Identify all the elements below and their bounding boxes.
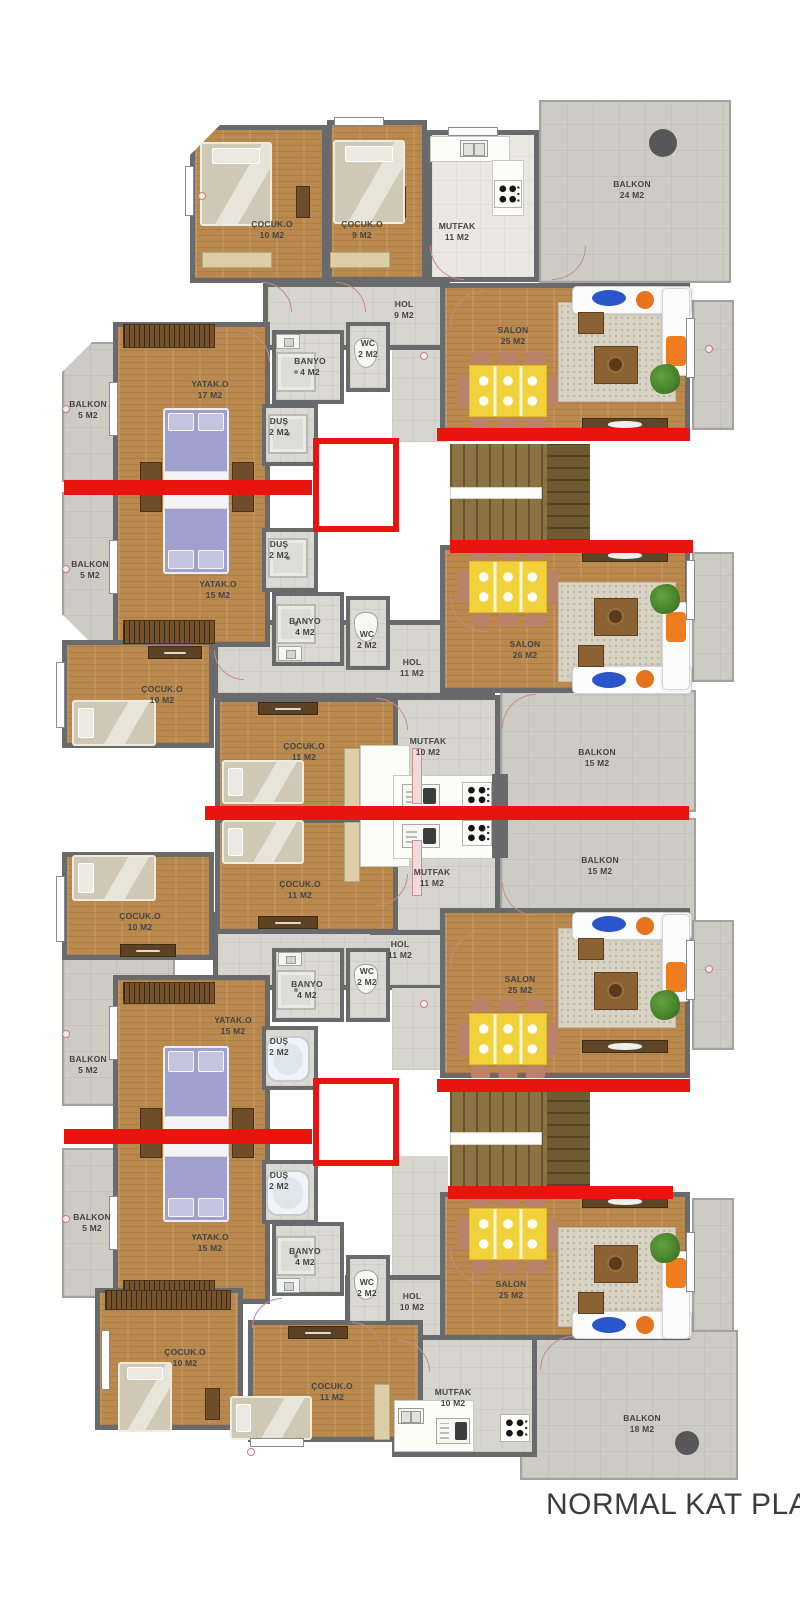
furniture-sideT	[578, 1292, 604, 1314]
furniture-washer	[276, 334, 300, 349]
red-section-bar	[448, 1186, 673, 1199]
room-area-text: 10 M2	[251, 230, 293, 241]
room-label-cocuk-ust-1: ÇOCUK.O10 M2	[251, 219, 293, 241]
room-area-text: 4 M2	[289, 627, 321, 638]
window	[686, 318, 695, 378]
room-area-text: 11 M2	[400, 668, 424, 679]
floor-plan-canvas: NORMAL KAT PLANI BALKON24 M2BALKON15 M2B…	[0, 0, 800, 1600]
dimension-mark	[420, 1000, 428, 1008]
room-label-balkon-5-a2: BALKON5 M2	[71, 559, 109, 581]
room-name-text: ÇOCUK.O	[119, 911, 161, 922]
furniture-bedD	[163, 1046, 229, 1134]
furniture-washer	[278, 646, 302, 661]
furniture-coffee	[594, 346, 638, 384]
room-label-balkon-15-ust: BALKON15 M2	[578, 747, 616, 769]
room-label-wc-b1: WC2 M2	[357, 966, 377, 988]
furniture-bench	[344, 748, 360, 808]
room-label-wc-a: WC2 M2	[358, 338, 378, 360]
room-name-text: BANYO	[289, 1246, 321, 1257]
room-label-cocuk-orta-sol-2: ÇOCUK.O10 M2	[119, 911, 161, 933]
furniture-sideT	[578, 312, 604, 334]
dimension-mark	[705, 345, 713, 353]
red-section-bar	[437, 1079, 690, 1092]
furniture-dresser	[120, 944, 176, 957]
room-label-hol-orta-alt: HOL11 M2	[388, 939, 412, 961]
dimension-mark	[705, 965, 713, 973]
room-area-text: 2 M2	[357, 1288, 377, 1299]
furniture-plant	[650, 364, 680, 394]
room-name-text: ÇOCUK.O	[283, 741, 325, 752]
furniture-sideT	[578, 645, 604, 667]
room-label-hol-ust: HOL9 M2	[394, 299, 414, 321]
furniture-bedS	[72, 855, 156, 901]
room-name-text: BALKON	[69, 1054, 107, 1065]
room-area-text: 10 M2	[435, 1398, 472, 1409]
furniture-dresser	[258, 702, 318, 715]
room-label-mutfak-orta-alt: MUTFAK11 M2	[414, 867, 451, 889]
room-area-text: 2 M2	[269, 550, 289, 561]
furniture-washer	[278, 952, 302, 966]
room-label-dus-b1: DUŞ2 M2	[269, 1036, 289, 1058]
column	[675, 1431, 699, 1455]
elevator-shaft	[313, 438, 399, 532]
furniture-bedS	[222, 820, 304, 864]
furniture-ward	[123, 324, 215, 348]
room-area-text: 2 M2	[269, 1181, 289, 1192]
room-area-text: 25 M2	[496, 1290, 527, 1301]
room-area-text: 11 M2	[311, 1392, 353, 1403]
furniture-plant	[650, 584, 680, 614]
room-label-mutfak-ust: MUTFAK11 M2	[439, 221, 476, 243]
room-name-text: SALON	[510, 639, 541, 650]
furniture-dresser	[288, 1326, 348, 1339]
furniture-dresser	[148, 646, 202, 659]
furniture-cushOL	[666, 962, 686, 992]
window	[109, 382, 118, 436]
stairs	[450, 1090, 590, 1186]
furniture-bench	[374, 1384, 390, 1440]
furniture-sink	[460, 140, 488, 157]
room-label-yatak-15-b2: YATAK.O15 M2	[191, 1232, 229, 1254]
room-area-text: 11 M2	[388, 950, 412, 961]
room-area-text: 15 M2	[199, 590, 237, 601]
dimension-mark	[420, 352, 428, 360]
furniture-bench	[344, 822, 360, 882]
furniture-stove4	[462, 782, 492, 808]
furniture-cushB	[592, 290, 626, 306]
room-label-balkon-5-b2: BALKON5 M2	[73, 1212, 111, 1234]
furniture-cushOL	[666, 1258, 686, 1288]
furniture-cushOL	[666, 612, 686, 642]
room-label-cocuk-alt-2: ÇOCUK.O11 M2	[311, 1381, 353, 1403]
room-name-text: YATAK.O	[191, 379, 229, 390]
room-label-banyo-a: BANYO4 M2	[294, 356, 326, 378]
room-name-text: ÇOCUK.O	[311, 1381, 353, 1392]
room-area-text: 10 M2	[141, 695, 183, 706]
room-area-text: 10 M2	[164, 1358, 206, 1369]
room-label-yatak-15-a: YATAK.O15 M2	[199, 579, 237, 601]
furniture-coffee	[594, 972, 638, 1010]
room-label-cocuk-ust-2: ÇOCUK.O9 M2	[341, 219, 383, 241]
room-area-text: 15 M2	[581, 866, 619, 877]
room-area-text: 25 M2	[505, 985, 536, 996]
room-name-text: WC	[357, 1277, 377, 1288]
room-name-text: ÇOCUK.O	[251, 219, 293, 230]
room-label-balkon-24: BALKON24 M2	[613, 179, 651, 201]
dimension-mark	[198, 192, 206, 200]
furniture-ward	[105, 1290, 231, 1310]
furniture-bedS	[118, 1362, 172, 1432]
room-label-cocuk-orta-1: ÇOCUK.O11 M2	[283, 741, 325, 763]
room-label-banyo-a2: BANYO4 M2	[289, 616, 321, 638]
room-name-text: MUTFAK	[410, 736, 447, 747]
furniture-cushB	[592, 1317, 626, 1333]
furniture-night	[205, 1388, 220, 1420]
room-area-text: 5 M2	[71, 570, 109, 581]
furniture-bench	[202, 252, 272, 268]
room-area-text: 11 M2	[283, 752, 325, 763]
room-name-text: BALKON	[73, 1212, 111, 1223]
window	[56, 876, 65, 942]
window	[109, 1006, 118, 1060]
room-name-text: WC	[357, 629, 377, 640]
furniture-ward	[123, 982, 215, 1004]
room-area-text: 15 M2	[214, 1026, 252, 1037]
furniture-bedD	[163, 408, 229, 488]
furniture-cushB	[592, 672, 626, 688]
room-area-text: 2 M2	[358, 349, 378, 360]
room-name-text: HOL	[388, 939, 412, 950]
red-section-bar	[64, 480, 312, 495]
furniture-stove4	[494, 180, 522, 208]
room-area-text: 9 M2	[341, 230, 383, 241]
room-yan-balkon-1	[692, 300, 734, 430]
room-area-text: 2 M2	[357, 640, 377, 651]
furniture-plant	[650, 1233, 680, 1263]
window	[686, 560, 695, 620]
room-area-text: 4 M2	[294, 367, 326, 378]
window	[334, 117, 384, 126]
plan-title: NORMAL KAT PLANI	[546, 1488, 800, 1521]
furniture-cushO	[636, 291, 654, 309]
elevator-shaft	[313, 1078, 399, 1166]
red-section-bar	[437, 428, 690, 441]
room-name-text: MUTFAK	[435, 1387, 472, 1398]
room-name-text: SALON	[498, 325, 529, 336]
room-name-text: DUŞ	[269, 1036, 289, 1047]
room-name-text: ÇOCUK.O	[141, 684, 183, 695]
room-name-text: BALKON	[578, 747, 616, 758]
room-label-yatak-17: YATAK.O17 M2	[191, 379, 229, 401]
room-area-text: 11 M2	[414, 878, 451, 889]
room-area-text: 5 M2	[69, 410, 107, 421]
room-area-text: 2 M2	[269, 1047, 289, 1058]
furniture-bedD	[163, 492, 229, 574]
furniture-bedS	[72, 700, 156, 746]
red-section-bar	[205, 806, 689, 820]
furniture-cushOL	[666, 336, 686, 366]
room-area-text: 11 M2	[439, 232, 476, 243]
furniture-bedD	[163, 1140, 229, 1222]
room-name-text: YATAK.O	[214, 1015, 252, 1026]
furniture-sink	[398, 1408, 424, 1424]
room-area-text: 26 M2	[510, 650, 541, 661]
room-name-text: BALKON	[613, 179, 651, 190]
room-name-text: BALKON	[71, 559, 109, 570]
room-label-banyo-b1: BANYO4 M2	[291, 979, 323, 1001]
room-label-dus-a: DUŞ2 M2	[269, 416, 289, 438]
room-name-text: ÇOCUK.O	[164, 1347, 206, 1358]
furniture-plant	[650, 990, 680, 1020]
room-area-text: 5 M2	[69, 1065, 107, 1076]
furniture-dining	[458, 1000, 558, 1078]
furniture-cushO	[636, 1316, 654, 1334]
window	[686, 940, 695, 1000]
room-area-text: 18 M2	[623, 1424, 661, 1435]
room-name-text: BANYO	[294, 356, 326, 367]
room-name-text: SALON	[505, 974, 536, 985]
room-yan-balkon-2	[692, 552, 734, 682]
room-name-text: MUTFAK	[414, 867, 451, 878]
furniture-cushO	[636, 917, 654, 935]
room-name-text: ÇOCUK.O	[341, 219, 383, 230]
room-label-balkon-5-b1: BALKON5 M2	[69, 1054, 107, 1076]
room-name-text: HOL	[400, 657, 424, 668]
room-label-mutfak-orta-ust: MUTFAK10 M2	[410, 736, 447, 758]
room-name-text: DUŞ	[269, 416, 289, 427]
furniture-coffee	[594, 1245, 638, 1283]
room-label-balkon-18: BALKON18 M2	[623, 1413, 661, 1435]
red-section-bar	[64, 1129, 312, 1144]
furniture-cushO	[636, 670, 654, 688]
stairs	[450, 444, 590, 541]
window	[686, 1232, 695, 1292]
furniture-dining	[458, 352, 558, 430]
room-area-text: 10 M2	[400, 1302, 425, 1313]
room-name-text: BALKON	[69, 399, 107, 410]
room-name-text: WC	[357, 966, 377, 977]
window	[56, 662, 65, 728]
window	[185, 166, 194, 216]
room-label-banyo-b2: BANYO4 M2	[289, 1246, 321, 1268]
furniture-cushB	[592, 916, 626, 932]
room-name-text: HOL	[400, 1291, 425, 1302]
room-label-balkon-15-alt: BALKON15 M2	[581, 855, 619, 877]
window	[101, 1330, 110, 1390]
room-name-text: BANYO	[289, 616, 321, 627]
room-name-text: DUŞ	[269, 1170, 289, 1181]
room-name-text: BALKON	[581, 855, 619, 866]
room-yan-balkon-4	[692, 1198, 734, 1332]
room-label-hol-alt: HOL10 M2	[400, 1291, 425, 1313]
room-area-text: 25 M2	[498, 336, 529, 347]
room-label-mutfak-alt: MUTFAK10 M2	[435, 1387, 472, 1409]
furniture-dresser	[258, 916, 318, 929]
room-area-text: 2 M2	[269, 427, 289, 438]
room-label-salon-alt-1: SALON25 M2	[505, 974, 536, 996]
furniture-coffee	[594, 598, 638, 636]
room-label-yatak-15-b1: YATAK.O15 M2	[214, 1015, 252, 1037]
furniture-bedS	[222, 760, 304, 804]
furniture-bedS	[230, 1396, 312, 1440]
room-label-cocuk-orta-sol-1: ÇOCUK.O10 M2	[141, 684, 183, 706]
furniture-oven	[436, 1418, 470, 1444]
furniture-stove4	[462, 820, 492, 846]
room-name-text: BANYO	[291, 979, 323, 990]
room-name-text: HOL	[394, 299, 414, 310]
room-name-text: ÇOCUK.O	[279, 879, 321, 890]
room-name-text: SALON	[496, 1279, 527, 1290]
room-area-text: 2 M2	[357, 977, 377, 988]
furniture-bedS	[200, 142, 272, 226]
room-yan-balkon-3	[692, 920, 734, 1050]
room-area-text: 11 M2	[279, 890, 321, 901]
furniture-bench	[330, 252, 390, 268]
furniture-stove4	[500, 1414, 530, 1442]
furniture-bedS	[333, 140, 405, 224]
furniture-tv	[582, 1040, 668, 1053]
room-area-text: 9 M2	[394, 310, 414, 321]
room-name-text: WC	[358, 338, 378, 349]
room-label-dus-b2: DUŞ2 M2	[269, 1170, 289, 1192]
room-label-cocuk-orta-2: ÇOCUK.O11 M2	[279, 879, 321, 901]
furniture-night	[296, 186, 310, 218]
room-area-text: 10 M2	[119, 922, 161, 933]
room-area-text: 15 M2	[578, 758, 616, 769]
furniture-ward	[123, 620, 215, 644]
window	[448, 127, 498, 136]
room-name-text: MUTFAK	[439, 221, 476, 232]
dimension-mark	[62, 1030, 70, 1038]
room-label-hol-orta-ust: HOL11 M2	[400, 657, 424, 679]
room-label-salon-alt-2: SALON25 M2	[496, 1279, 527, 1301]
column	[649, 129, 677, 157]
room-name-text: YATAK.O	[199, 579, 237, 590]
dimension-mark	[247, 1448, 255, 1456]
room-area-text: 15 M2	[191, 1243, 229, 1254]
room-label-wc-b2: WC2 M2	[357, 1277, 377, 1299]
room-label-dus-a2: DUŞ2 M2	[269, 539, 289, 561]
room-name-text: BALKON	[623, 1413, 661, 1424]
window	[250, 1438, 304, 1447]
room-label-salon-orta: SALON26 M2	[510, 639, 541, 661]
room-name-text: DUŞ	[269, 539, 289, 550]
room-label-wc-a2: WC2 M2	[357, 629, 377, 651]
dimension-mark	[62, 565, 70, 573]
red-section-bar	[450, 540, 693, 553]
room-label-cocuk-alt-1: ÇOCUK.O10 M2	[164, 1347, 206, 1369]
dimension-mark	[62, 1215, 70, 1223]
window	[109, 540, 118, 594]
room-label-salon-ust: SALON25 M2	[498, 325, 529, 347]
room-label-balkon-5-a1: BALKON5 M2	[69, 399, 107, 421]
room-area-text: 4 M2	[289, 1257, 321, 1268]
furniture-washer	[276, 1278, 300, 1293]
room-area-text: 5 M2	[73, 1223, 111, 1234]
furniture-sideT	[578, 938, 604, 960]
room-area-text: 10 M2	[410, 747, 447, 758]
room-area-text: 24 M2	[613, 190, 651, 201]
room-area-text: 17 M2	[191, 390, 229, 401]
room-area-text: 4 M2	[291, 990, 323, 1001]
room-name-text: YATAK.O	[191, 1232, 229, 1243]
